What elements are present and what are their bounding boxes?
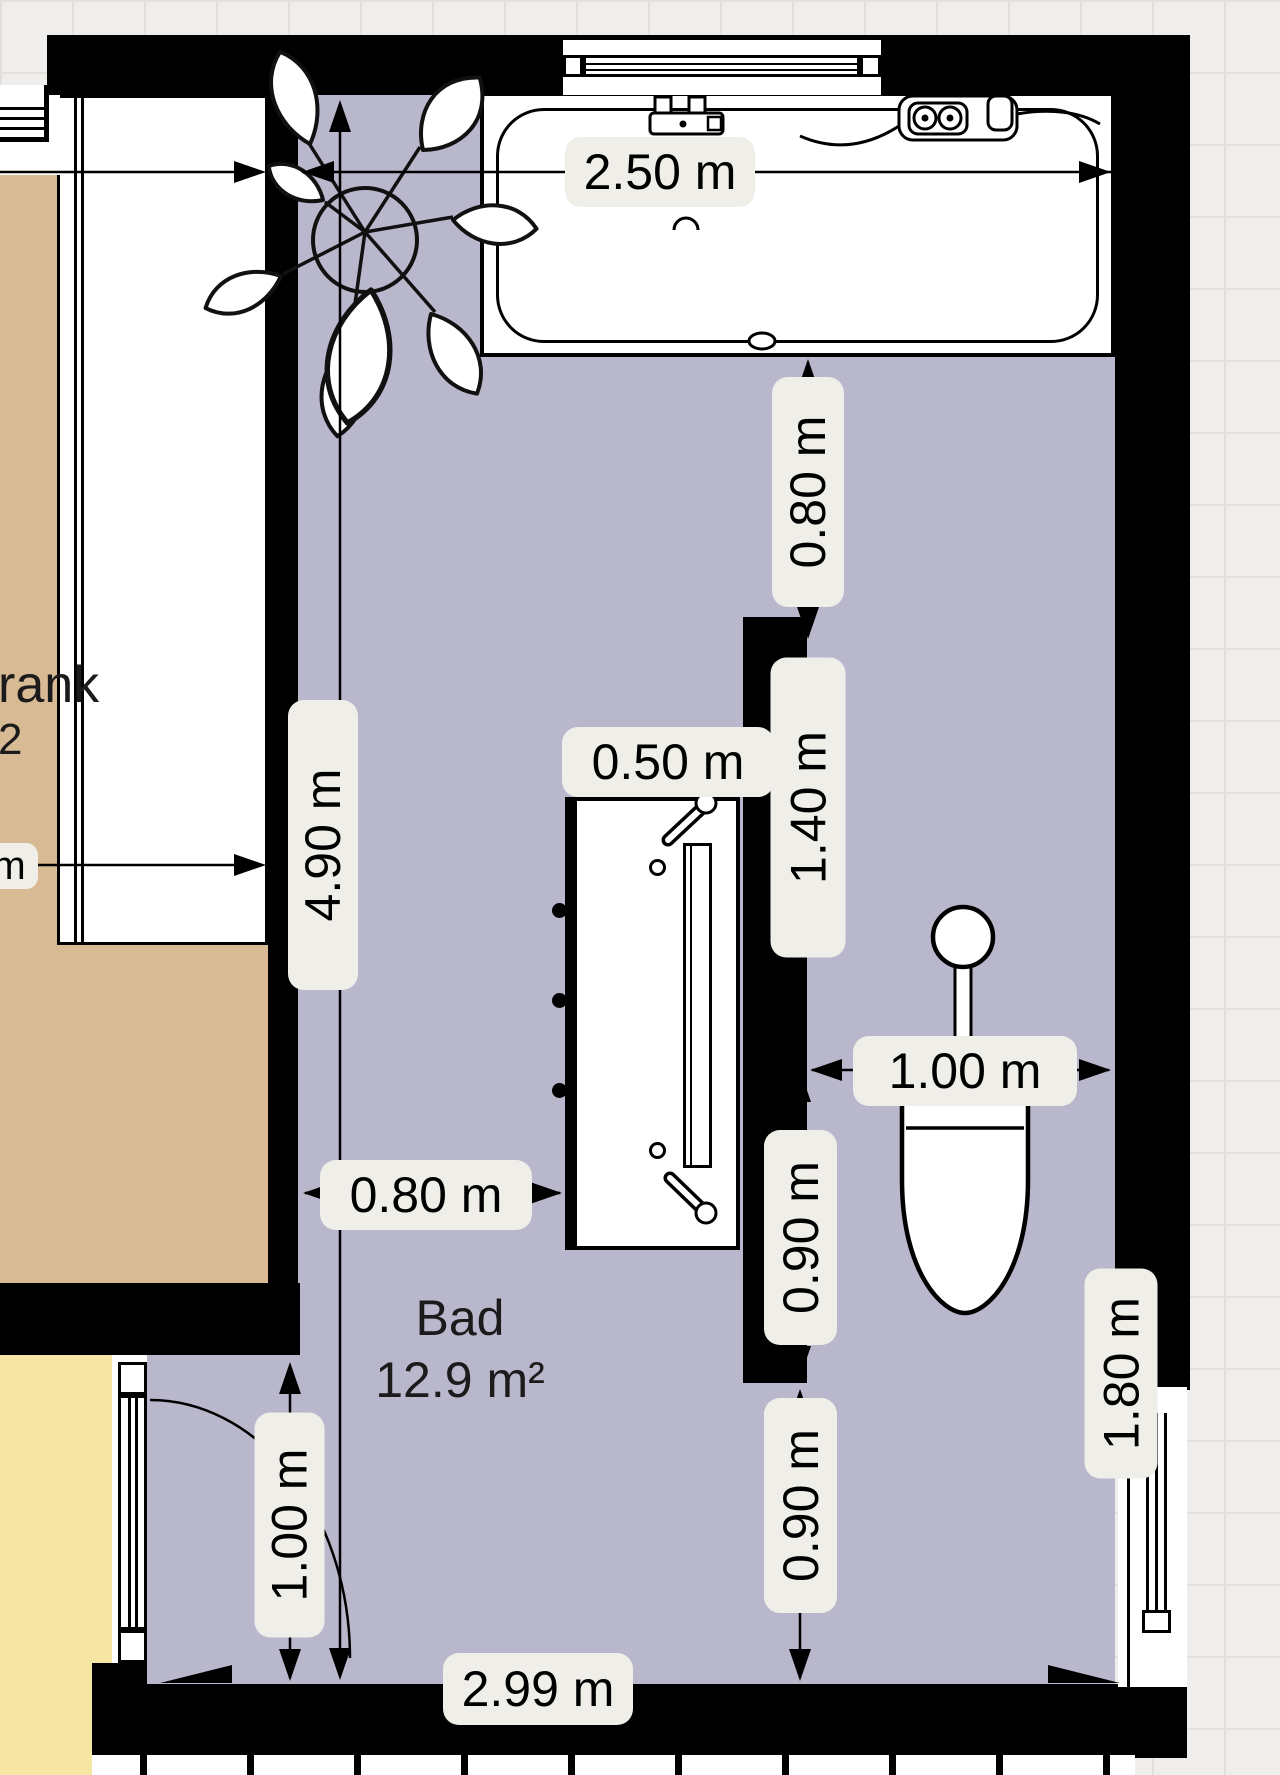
bathtub-overflow-icon <box>674 218 698 230</box>
bathroom-name: Bad <box>340 1287 580 1349</box>
dim-label-tub-to-partition[interactable]: 0.80 m <box>772 377 844 607</box>
left-room-area-partial: 2 <box>0 715 22 765</box>
bathtub-drain-icon <box>749 333 775 349</box>
bathtub-handshower-icon <box>800 96 1100 145</box>
bathtub-faucet-icon <box>650 97 723 134</box>
plant-icon[interactable] <box>198 45 538 439</box>
dim-label-room-height[interactable]: 4.90 m <box>288 700 358 990</box>
left-room-label-partial: rank <box>0 655 99 715</box>
dim-label-room-width[interactable]: 2.99 m <box>443 1653 633 1725</box>
dim-label-shower-width[interactable]: 0.50 m <box>562 727 774 797</box>
dim-label-tub-width[interactable]: 2.50 m <box>565 137 755 207</box>
dim-label-wc-nook-lower[interactable]: 0.90 m <box>764 1398 837 1613</box>
dim-label-partition-length[interactable]: 1.40 m <box>771 658 846 958</box>
dim-label-window-width[interactable]: 1.80 m <box>1085 1269 1158 1479</box>
floorplan-canvas: 2.50 m 4.90 m 0.80 m 0.50 m 1.40 m 1.00 … <box>0 0 1280 1775</box>
dimension-lines <box>0 100 1120 1683</box>
shower-handle-icon <box>668 793 716 1223</box>
plan-linework <box>0 0 1280 1775</box>
toilet[interactable] <box>902 907 1028 1313</box>
dim-label-left-partial[interactable]: m <box>0 843 38 889</box>
dim-label-door-clearance[interactable]: 0.80 m <box>320 1160 532 1230</box>
dim-label-door-width[interactable]: 1.00 m <box>255 1413 325 1638</box>
bathroom-label[interactable]: Bad 12.9 m² <box>340 1287 580 1411</box>
dim-label-wc-width[interactable]: 1.00 m <box>853 1036 1077 1106</box>
dim-label-wc-nook-upper[interactable]: 0.90 m <box>764 1130 837 1345</box>
bathroom-area: 12.9 m² <box>340 1349 580 1411</box>
